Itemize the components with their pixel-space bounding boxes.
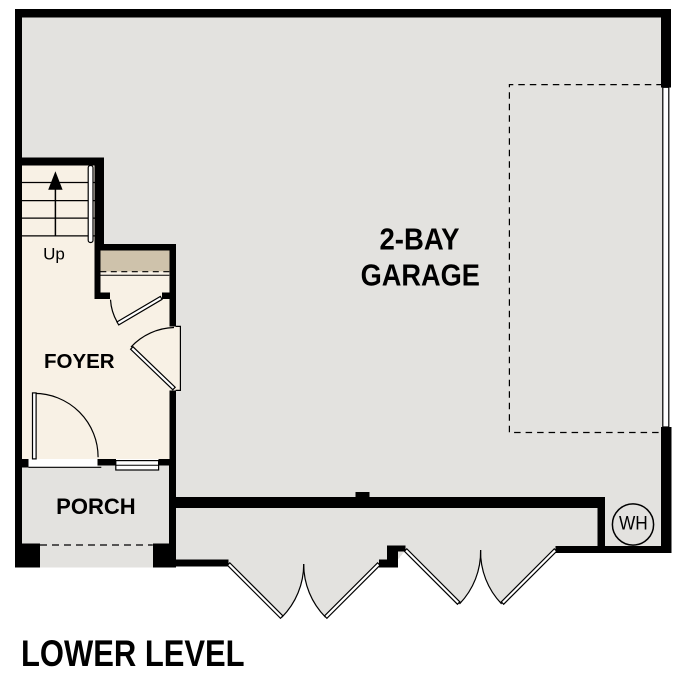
svg-text:2-BAY: 2-BAY <box>380 222 460 256</box>
svg-text:Up: Up <box>43 244 65 263</box>
svg-text:FOYER: FOYER <box>44 350 115 373</box>
svg-text:LOWER LEVEL: LOWER LEVEL <box>21 633 245 674</box>
svg-text:WH: WH <box>619 513 648 535</box>
svg-text:PORCH: PORCH <box>56 494 135 519</box>
svg-text:GARAGE: GARAGE <box>361 259 480 293</box>
